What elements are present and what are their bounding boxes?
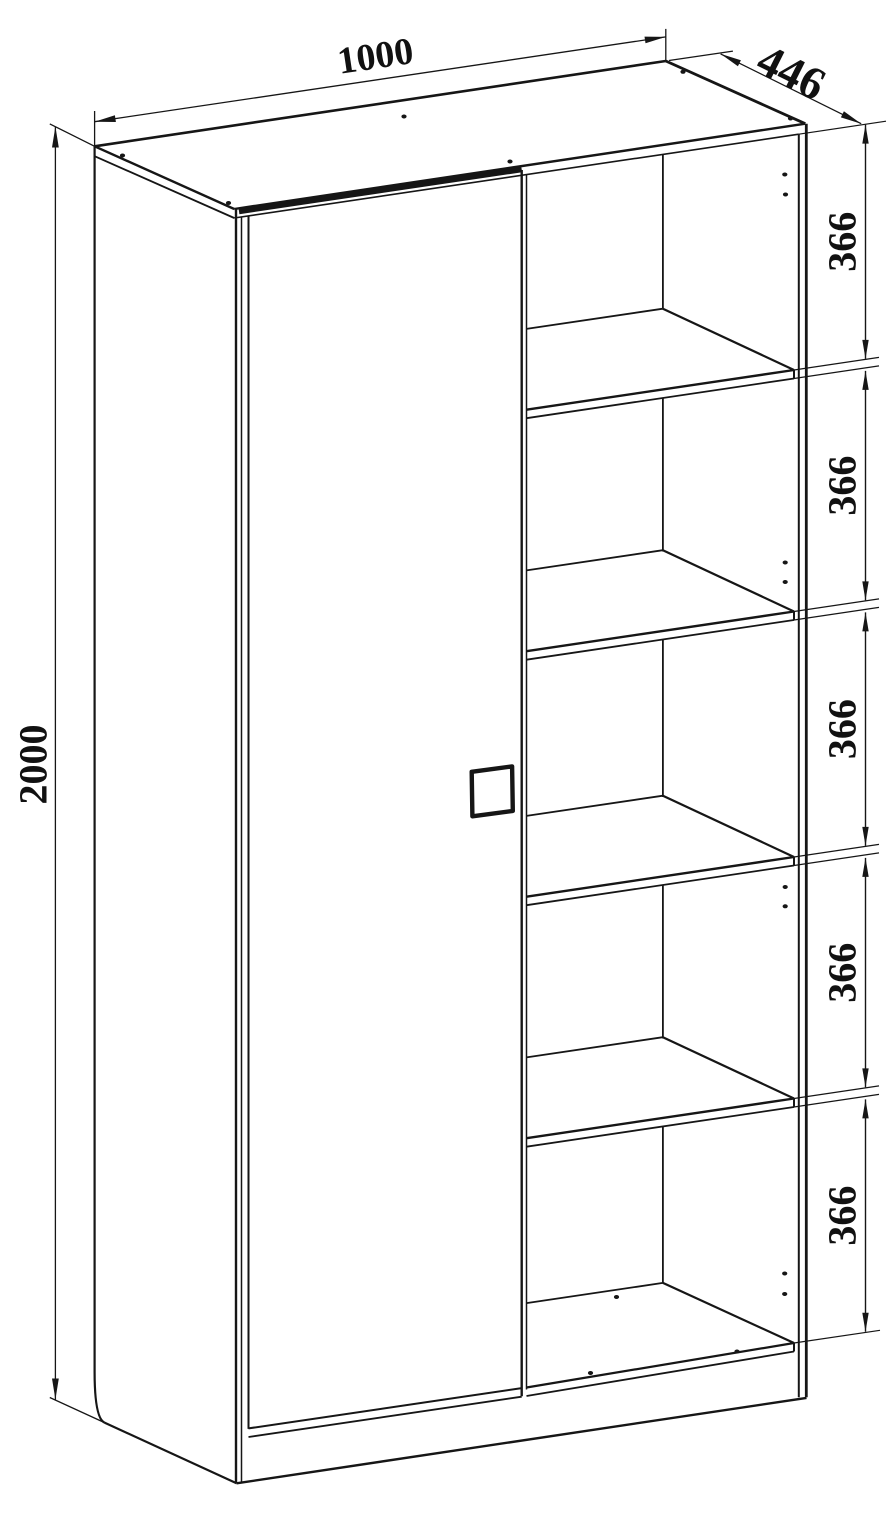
svg-text:366: 366	[820, 456, 865, 516]
svg-text:366: 366	[820, 1186, 865, 1246]
svg-text:366: 366	[820, 943, 865, 1003]
svg-text:366: 366	[820, 699, 865, 759]
svg-text:2000: 2000	[11, 725, 56, 805]
svg-text:366: 366	[820, 212, 865, 272]
